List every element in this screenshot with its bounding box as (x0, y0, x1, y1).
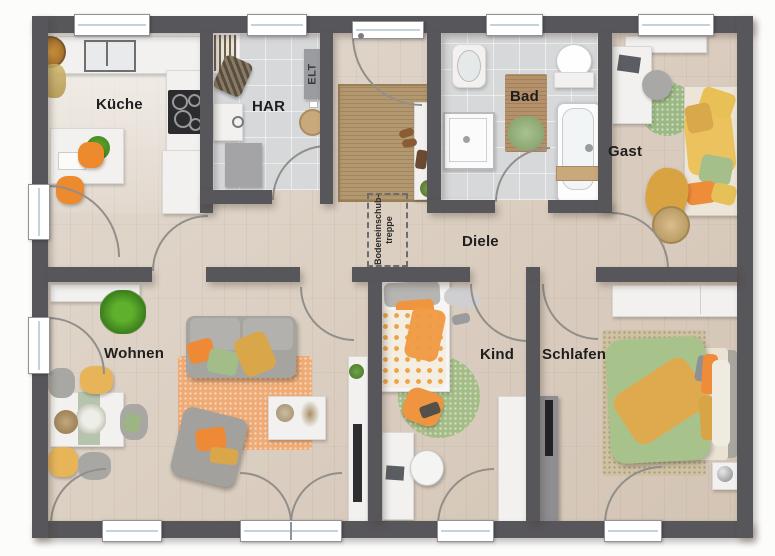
decor-bowl (276, 404, 294, 422)
living-plant (100, 290, 146, 334)
kitchen-sink (84, 40, 136, 72)
tv-plant (349, 364, 364, 379)
wall-bath-bottom-left (427, 200, 495, 213)
tv (353, 424, 362, 502)
room-label-wohnen: Wohnen (104, 345, 164, 362)
bedroom-window (604, 520, 662, 542)
bath-window (486, 14, 543, 36)
kids-window (437, 520, 494, 542)
wall-kids-bedroom (526, 282, 540, 521)
storage-box (225, 143, 262, 187)
kids-laptop (386, 465, 405, 480)
kitchen-sink-divider (106, 42, 108, 66)
wall-utility-bottom (200, 190, 272, 204)
room-label-har: HAR (252, 98, 285, 115)
wardrobe-seam (700, 286, 701, 314)
living-window (102, 520, 162, 542)
kids-wardrobe (498, 396, 528, 523)
shower-drain (463, 136, 470, 143)
flower-bouquet (76, 404, 106, 434)
stove-burner (172, 94, 188, 110)
bedroom-pillow-white (712, 360, 730, 446)
laptop (617, 55, 641, 74)
terrace-double-door (240, 520, 342, 542)
attic-stairs-label: Bodeneinschub- treppe (373, 195, 399, 265)
armchair-blanket (209, 447, 239, 466)
room-label-bad: Bad (510, 88, 539, 105)
front-door-handle (358, 33, 364, 39)
elt-label: ELT (300, 48, 326, 100)
fridge (162, 150, 205, 214)
attic-stairs-outline: Bodeneinschub- treppe (367, 193, 408, 267)
wall-kitchen-utility (200, 33, 213, 213)
room-label-kind: Kind (480, 346, 514, 363)
wall-hall-4 (526, 267, 540, 282)
wall-hall-5 (596, 267, 737, 282)
room-label-kueche: Küche (96, 96, 143, 113)
washing-machine-door (232, 116, 244, 128)
room-label-diele: Diele (462, 233, 499, 250)
room-label-schlafen: Schlafen (542, 346, 606, 363)
guest-window (638, 14, 714, 36)
bathtub-tray (556, 166, 600, 181)
bedroom-wardrobe (612, 285, 739, 317)
dry-twigs (300, 400, 320, 428)
outer-wall-left (32, 16, 48, 538)
sofa-pillow-green (206, 348, 240, 377)
wall-hall-1 (48, 267, 152, 282)
wall-bath-left (427, 33, 441, 200)
guest-pillow-mustard (683, 102, 714, 135)
guest-desk-chair (642, 70, 672, 100)
wall-living-kids (368, 282, 382, 521)
room-label-gast: Gast (608, 143, 642, 160)
wall-hall-2 (206, 267, 300, 282)
floor-plan: Bodeneinschub- treppe Küche (0, 0, 775, 556)
wall-hall-3 (352, 267, 470, 282)
living-side-window (28, 317, 50, 374)
elt-cabinet-handle (309, 101, 318, 108)
towel-pile (508, 116, 544, 150)
dining-chair-yellow (48, 447, 78, 477)
bathtub-faucet (585, 144, 593, 152)
kitchen-side-window (28, 184, 50, 240)
wall-guest-left (598, 33, 612, 212)
kitchen-chair-orange (78, 142, 104, 168)
bedside-lamp (717, 466, 733, 482)
utility-window (247, 14, 307, 36)
outer-wall-right (737, 16, 753, 538)
bedroom-tv (545, 400, 553, 456)
bathroom-sink-basin (457, 50, 481, 82)
kitchen-window (74, 14, 150, 36)
toilet-tank (554, 72, 594, 88)
serving-plate (54, 410, 78, 434)
kids-desk-chair (410, 450, 444, 486)
